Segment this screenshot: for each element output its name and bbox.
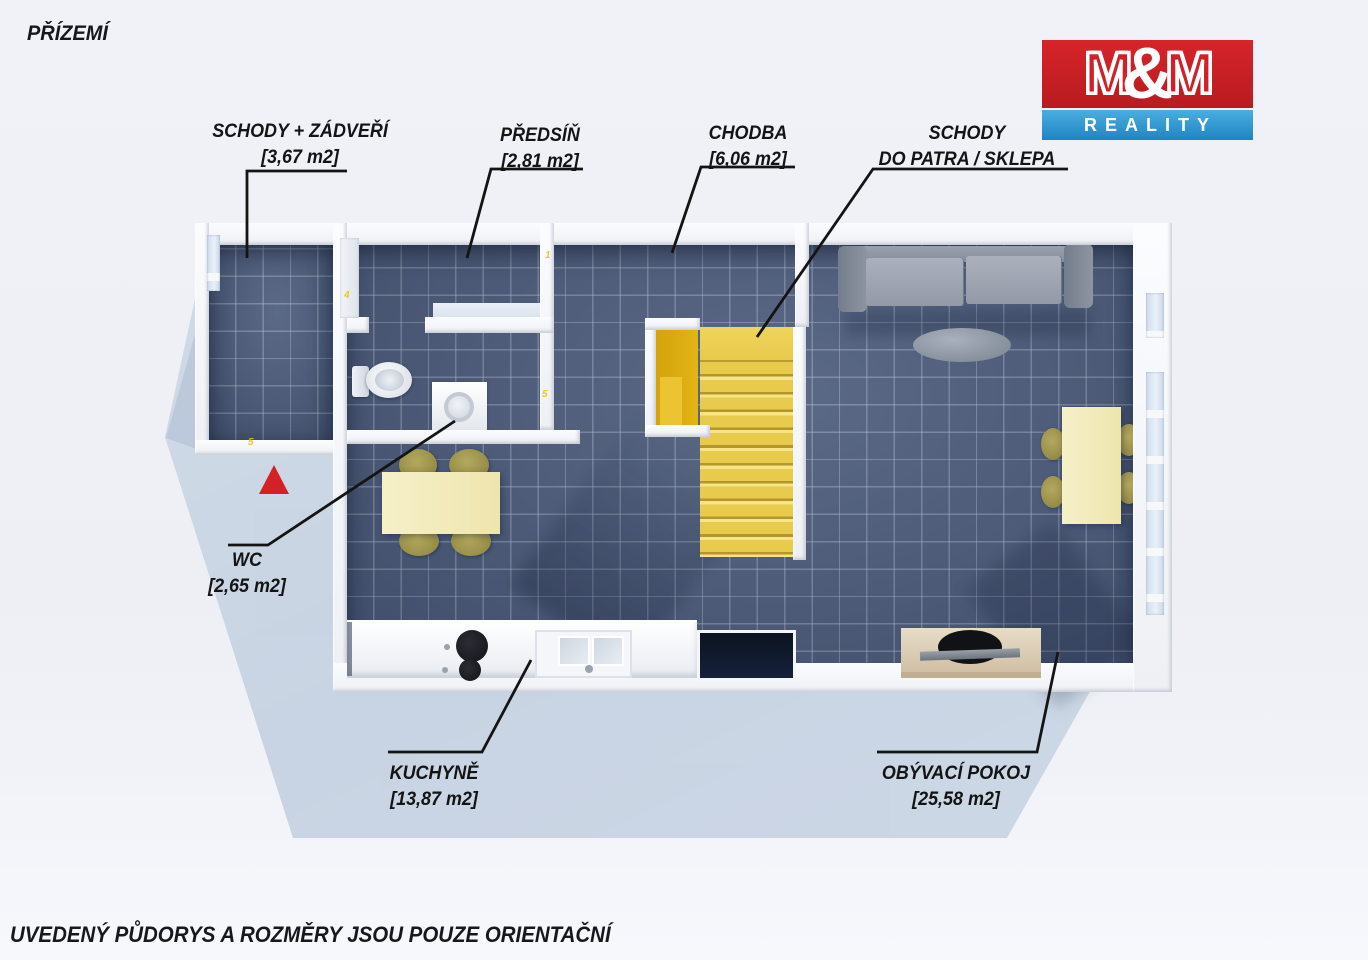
floor-plan-page: PŘÍZEMÍ M & M REALITY xyxy=(0,0,1368,960)
room-name: PŘEDSÍŇ xyxy=(500,122,580,148)
room-name: CHODBA xyxy=(709,120,788,146)
room-name: SCHODY xyxy=(879,120,1056,146)
leader-line-entry xyxy=(247,171,347,258)
leader-lines-overlay xyxy=(0,0,1368,960)
label-wc: WC [2,65 m2] xyxy=(208,547,286,599)
label-living-room: OBÝVACÍ POKOJ [25,58 m2] xyxy=(882,760,1030,812)
room-area: [2,65 m2] xyxy=(208,573,286,599)
leader-line-hall xyxy=(467,169,583,258)
room-name-2: DO PATRA / SKLEPA xyxy=(879,146,1056,172)
leader-line-kitchen xyxy=(388,660,531,752)
leader-line-corridor xyxy=(672,167,795,253)
leader-line-stairs xyxy=(757,169,1068,337)
room-area: [25,58 m2] xyxy=(882,786,1030,812)
page-title: PŘÍZEMÍ xyxy=(27,22,108,46)
room-area: [13,87 m2] xyxy=(390,786,479,812)
room-name: KUCHYNĚ xyxy=(390,760,479,786)
disclaimer-text: UVEDENÝ PŮDORYS A ROZMĚRY JSOU POUZE ORI… xyxy=(10,922,611,948)
logo-reality-bar: REALITY xyxy=(1042,110,1253,140)
room-name: WC xyxy=(208,547,286,573)
room-area: [6,06 m2] xyxy=(709,146,788,172)
room-name: SCHODY + ZÁDVEŘÍ xyxy=(212,118,388,144)
label-entry-room: SCHODY + ZÁDVEŘÍ [3,67 m2] xyxy=(212,118,388,170)
label-stairs: SCHODY DO PATRA / SKLEPA xyxy=(879,120,1056,172)
label-corridor: CHODBA [6,06 m2] xyxy=(709,120,788,172)
mm-reality-logo: M & M REALITY xyxy=(1042,40,1253,140)
room-area: [3,67 m2] xyxy=(212,144,388,170)
label-kitchen: KUCHYNĚ [13,87 m2] xyxy=(390,760,479,812)
leader-line-wc xyxy=(228,421,455,545)
leader-line-living xyxy=(877,652,1058,752)
entrance-arrow-icon xyxy=(259,465,289,494)
room-name: OBÝVACÍ POKOJ xyxy=(882,760,1030,786)
logo-ampersand: & xyxy=(1122,44,1174,104)
label-hall: PŘEDSÍŇ [2,81 m2] xyxy=(500,122,580,174)
room-area: [2,81 m2] xyxy=(500,148,580,174)
logo-mm-block: M & M xyxy=(1042,40,1253,108)
